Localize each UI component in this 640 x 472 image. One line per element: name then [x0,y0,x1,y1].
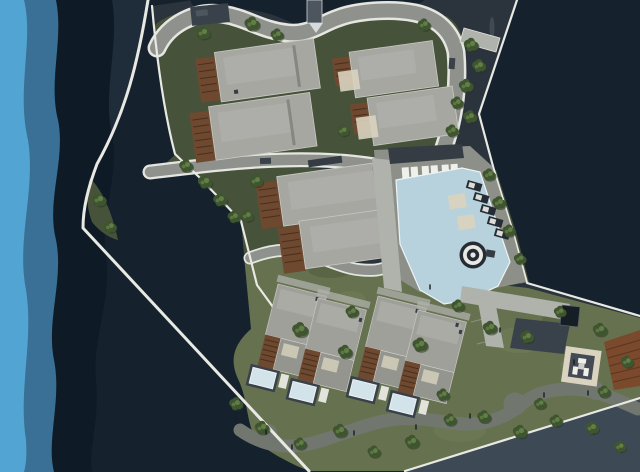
site-plan-canvas [0,0,640,472]
site-plan-rendering [0,0,640,472]
car [449,58,456,69]
bbq-pavilion [561,346,602,387]
car [211,8,223,15]
car [260,158,271,164]
car [196,9,209,16]
parking-pocket [190,3,230,26]
